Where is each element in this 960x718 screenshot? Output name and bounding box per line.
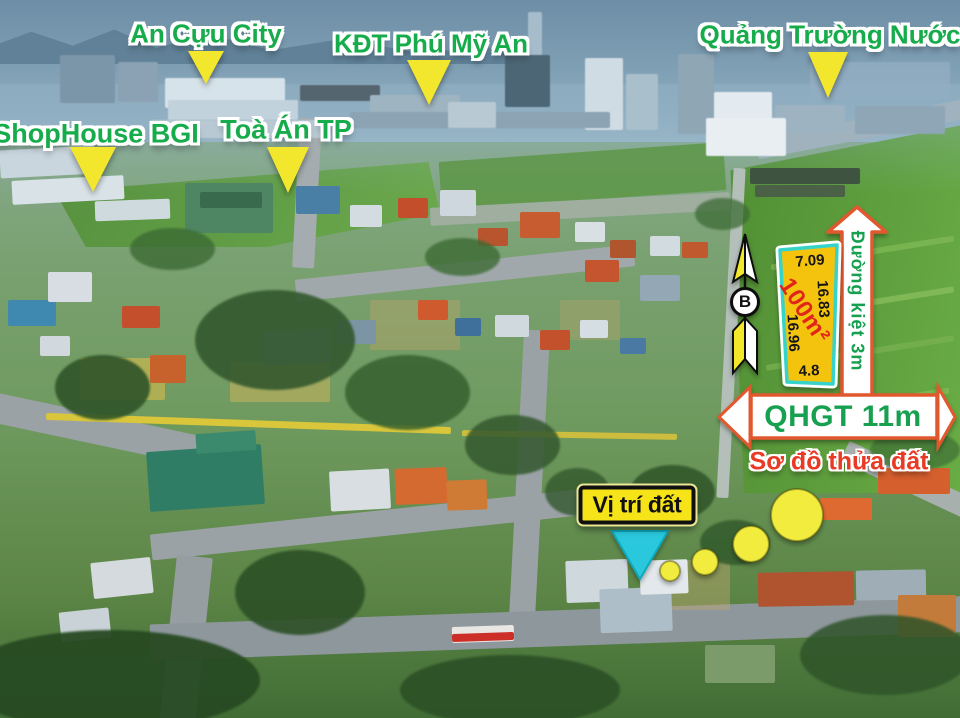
bg-shape: [455, 318, 481, 336]
bg-shape: [758, 571, 855, 607]
bg-shape: [8, 300, 56, 326]
bg-shape: [820, 498, 872, 520]
bg-shape: [350, 205, 382, 227]
parcel-edge-top: 7.09: [795, 251, 826, 270]
bg-shape: [60, 55, 115, 103]
location-badge: Vị trí đất: [578, 486, 695, 525]
bg-shape: [700, 520, 770, 565]
bg-shape: [130, 228, 215, 270]
aerial-photo-background: [0, 0, 960, 718]
label-shophouse-bgi: ShopHouse BGI: [0, 119, 199, 150]
bg-shape: [118, 62, 158, 102]
site-plan-caption: Sơ đồ thửa đất: [750, 448, 929, 477]
compass-north-letter: B: [739, 292, 751, 312]
bg-shape: [185, 183, 273, 233]
bg-shape: [40, 336, 70, 356]
bg-shape: [235, 550, 365, 635]
bg-shape: [585, 260, 619, 282]
bg-shape: [300, 85, 380, 101]
bg-shape: [55, 355, 150, 420]
aerial-photo-scene: An Cựu City KĐT Phú Mỹ An Quảng Trường N…: [0, 0, 960, 718]
bg-shape: [465, 415, 560, 475]
bg-shape: [505, 55, 550, 107]
bg-shape: [495, 315, 529, 337]
bg-shape: [90, 557, 153, 599]
label-kdt-phu-my-an: KĐT Phú Mỹ An: [334, 29, 528, 60]
pointer-quang-truong-nuoc-icon: [808, 52, 848, 98]
pointer-kdt-phu-my-an-icon: [407, 60, 451, 105]
bg-shape: [200, 192, 262, 208]
bg-shape: [855, 106, 945, 134]
bg-shape: [440, 190, 476, 216]
bg-shape: [446, 479, 487, 510]
bg-shape: [520, 212, 560, 238]
bg-shape: [706, 118, 786, 156]
bg-shape: [150, 355, 186, 383]
alley-road-label: Đường kiệt 3m: [847, 231, 868, 372]
bg-shape: [580, 320, 608, 338]
bg-shape: [418, 300, 448, 320]
bg-shape: [329, 468, 391, 511]
bg-shape: [195, 290, 355, 390]
bg-shape: [705, 645, 775, 683]
bg-shape: [755, 185, 845, 197]
bg-shape: [639, 559, 688, 595]
bg-shape: [682, 242, 708, 258]
bg-shape: [695, 198, 750, 230]
bg-shape: [195, 430, 256, 454]
bg-shape: [425, 238, 500, 276]
bg-shape: [650, 236, 680, 256]
bg-shape: [800, 615, 960, 695]
bg-shape: [575, 222, 605, 242]
bg-shape: [95, 199, 171, 222]
label-toa-an-tp: Toà Án TP: [220, 115, 352, 146]
bg-shape: [398, 198, 428, 218]
bg-shape: [345, 355, 470, 430]
bg-shape: [750, 168, 860, 184]
bg-shape: [400, 655, 620, 718]
label-an-cuu-city: An Cựu City: [130, 19, 282, 50]
bg-shape: [394, 467, 447, 505]
pointer-shophouse-bgi-icon: [70, 147, 116, 192]
bg-shape: [620, 338, 646, 354]
bg-shape: [146, 444, 265, 512]
label-quang-truong-nuoc: Quảng Trường Nước: [700, 20, 960, 51]
parcel-edge-left: 16.96: [784, 314, 803, 352]
pointer-toa-an-tp-icon: [267, 147, 309, 193]
qhgt-road-label: QHGT 11m: [764, 400, 921, 434]
bg-shape: [448, 102, 496, 128]
bg-shape: [610, 240, 636, 258]
bg-shape: [122, 306, 160, 328]
bg-shape: [540, 330, 570, 350]
bg-shape: [626, 74, 658, 130]
bg-shape: [640, 275, 680, 301]
bg-shape: [48, 272, 92, 302]
parcel-edge-bottom: 4.8: [798, 362, 820, 380]
bg-shape: [508, 330, 550, 641]
pointer-an-cuu-city-icon: [188, 51, 224, 84]
